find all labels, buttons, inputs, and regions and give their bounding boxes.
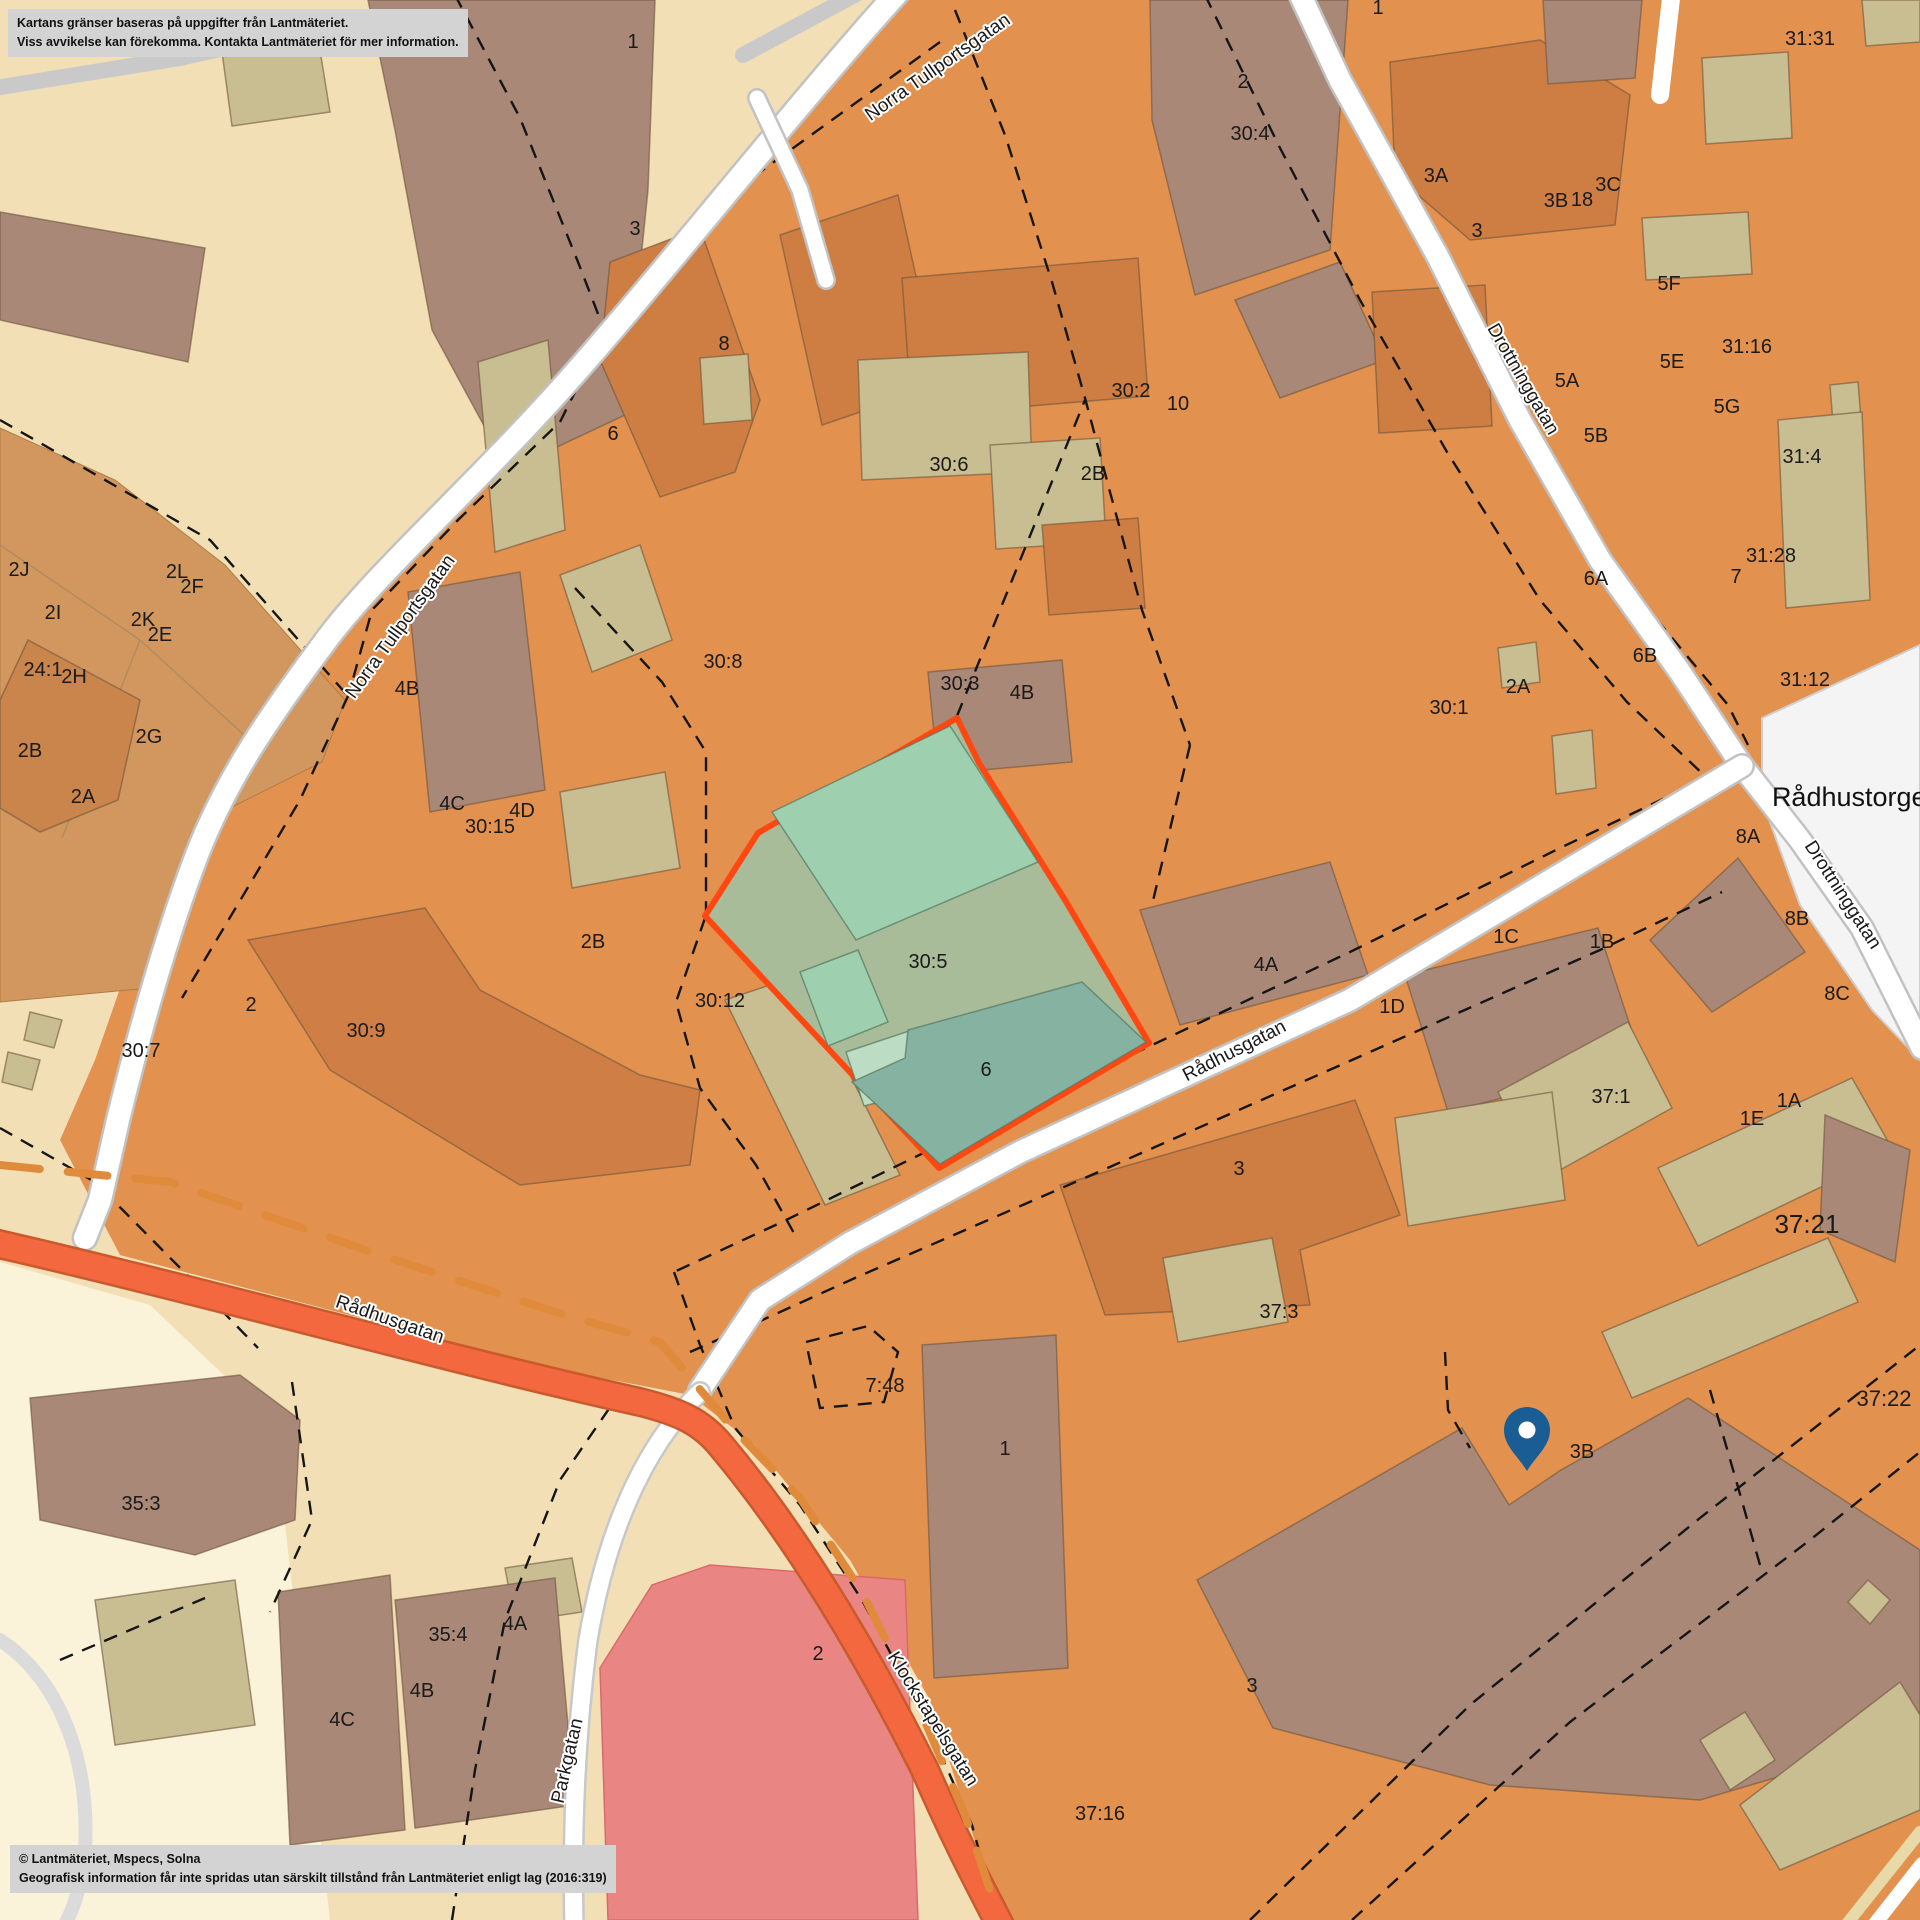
parcel-label: 31:12 [1780, 669, 1830, 691]
building [560, 772, 680, 888]
place-label-radhustorget: Rådhustorget [1772, 782, 1920, 812]
parcel-label: 2B [1081, 463, 1105, 485]
parcel-label: 8 [718, 333, 729, 355]
parcel-label: 1A [1777, 1090, 1802, 1112]
parcel-label: 37:1 [1592, 1086, 1631, 1108]
building [1552, 730, 1596, 794]
parcel-label: 30:7 [122, 1040, 161, 1062]
parcel-label: 3 [1233, 1158, 1244, 1180]
map-svg[interactable]: Norra TullportsgatanNorra Tullportsgatan… [0, 0, 1920, 1920]
building [395, 1578, 575, 1828]
parcel-label: 1C [1493, 926, 1519, 948]
parcel-label: 30:2 [1112, 380, 1151, 402]
parcel-label: 30:8 [704, 651, 743, 673]
parcel-label: 4C [329, 1709, 355, 1731]
parcel-label: 30:9 [347, 1020, 386, 1042]
parcel-label: 30:4 [1231, 123, 1270, 145]
parcel-label: 6 [607, 423, 618, 445]
parcel-label: 4B [1010, 682, 1034, 704]
parcel-label: 24:1 [24, 659, 63, 681]
parcel-label: 6 [980, 1059, 991, 1081]
parcel-label: 6A [1584, 568, 1609, 590]
parcel-label: 1B [1590, 931, 1614, 953]
parcel-label: 3A [1424, 165, 1449, 187]
parcel-label: 2J [8, 559, 29, 581]
parcel-label: 37:21 [1774, 1209, 1839, 1239]
parcel-label: 5B [1584, 425, 1608, 447]
parcel-label: 1 [627, 31, 638, 53]
parcel-label: 6B [1633, 645, 1657, 667]
parcel-label: 3B [1544, 190, 1568, 212]
parcel-label: 5A [1555, 370, 1580, 392]
parcel-label: 37:16 [1075, 1803, 1125, 1825]
building-red [600, 1565, 918, 1920]
building [1862, 0, 1920, 46]
parcel-label: 4B [410, 1680, 434, 1702]
parcel-label: 2B [18, 740, 42, 762]
parcel-label: 31:16 [1722, 336, 1772, 358]
parcel-label: 2I [45, 602, 62, 624]
building [1702, 52, 1792, 144]
parcel-label: 3 [1246, 1675, 1257, 1697]
parcel-label: 2A [71, 786, 96, 808]
parcel-label: 30:15 [465, 816, 515, 838]
parcel-label: 5E [1660, 351, 1684, 373]
parcel-label: 2 [812, 1643, 823, 1665]
parcel-label: 37:22 [1856, 1386, 1911, 1411]
parcel-label: 7:48 [866, 1375, 905, 1397]
parcel-label: 2H [61, 666, 87, 688]
building [408, 572, 545, 812]
road-stub [1660, 0, 1672, 95]
attribution-line-1: Kartans gränser baseras på uppgifter frå… [17, 14, 459, 33]
parcel-label: 3 [1471, 220, 1482, 242]
parcel-label: 2 [245, 994, 256, 1016]
parcel-label: 8A [1736, 826, 1761, 848]
copyright-line-2: Geografisk information får inte spridas … [19, 1869, 607, 1888]
parcel-label: 1 [999, 1438, 1010, 1460]
parcel-label: 2G [136, 726, 163, 748]
parcel-label: 1E [1740, 1108, 1764, 1130]
parcel-label: 3 [629, 218, 640, 240]
parcel-label: 30:5 [909, 951, 948, 973]
parcel-label: 4C [439, 793, 465, 815]
building [700, 354, 752, 424]
building [95, 1580, 255, 1745]
parcel-label: 18 [1571, 189, 1593, 211]
parcel-label: 2A [1506, 676, 1531, 698]
parcel-label: 31:28 [1746, 545, 1796, 567]
parcel-label: 4B [395, 678, 419, 700]
building [1543, 0, 1642, 84]
parcel-label: 3C [1595, 174, 1621, 196]
parcel-label: 37:3 [1260, 1301, 1299, 1323]
parcel-label: 35:3 [122, 1493, 161, 1515]
parcel-label: 2B [581, 931, 605, 953]
parcel-label: 31:31 [1785, 28, 1835, 50]
parcel-label: 5G [1714, 396, 1741, 418]
copyright-notice: © Lantmäteriet, Mspecs, Solna Geografisk… [10, 1845, 616, 1893]
parcel-label: 1D [1379, 996, 1405, 1018]
parcel-label: 10 [1167, 393, 1189, 415]
parcel-label: 35:4 [429, 1624, 468, 1646]
parcel-label: 30:6 [930, 454, 969, 476]
parcel-label: 4A [1254, 954, 1279, 976]
parcel-label: 3B [1570, 1441, 1594, 1463]
map-canvas[interactable]: Norra TullportsgatanNorra Tullportsgatan… [0, 0, 1920, 1920]
parcel-label: 7 [1730, 566, 1741, 588]
attribution-line-2: Viss avvikelse kan förekomma. Kontakta L… [17, 33, 459, 52]
parcel-label: 2 [1237, 71, 1248, 93]
attribution-notice: Kartans gränser baseras på uppgifter frå… [8, 9, 468, 57]
building [1778, 412, 1870, 608]
parcel-label: 8B [1785, 908, 1809, 930]
parcel-label: 30:3 [941, 673, 980, 695]
parcel-label: 8C [1824, 983, 1850, 1005]
parcel-label: 2E [148, 624, 172, 646]
parcel-label: 2F [180, 576, 203, 598]
parcel-label: 31:4 [1783, 446, 1822, 468]
parcel-label: 30:12 [695, 990, 745, 1012]
building [922, 1335, 1068, 1678]
copyright-line-1: © Lantmäteriet, Mspecs, Solna [19, 1850, 607, 1869]
parcel-label: 30:1 [1430, 697, 1469, 719]
parcel-label: 5F [1657, 273, 1680, 295]
building [1642, 212, 1752, 280]
parcel-label: 4A [503, 1613, 528, 1635]
parcel-label: 1 [1372, 0, 1383, 19]
